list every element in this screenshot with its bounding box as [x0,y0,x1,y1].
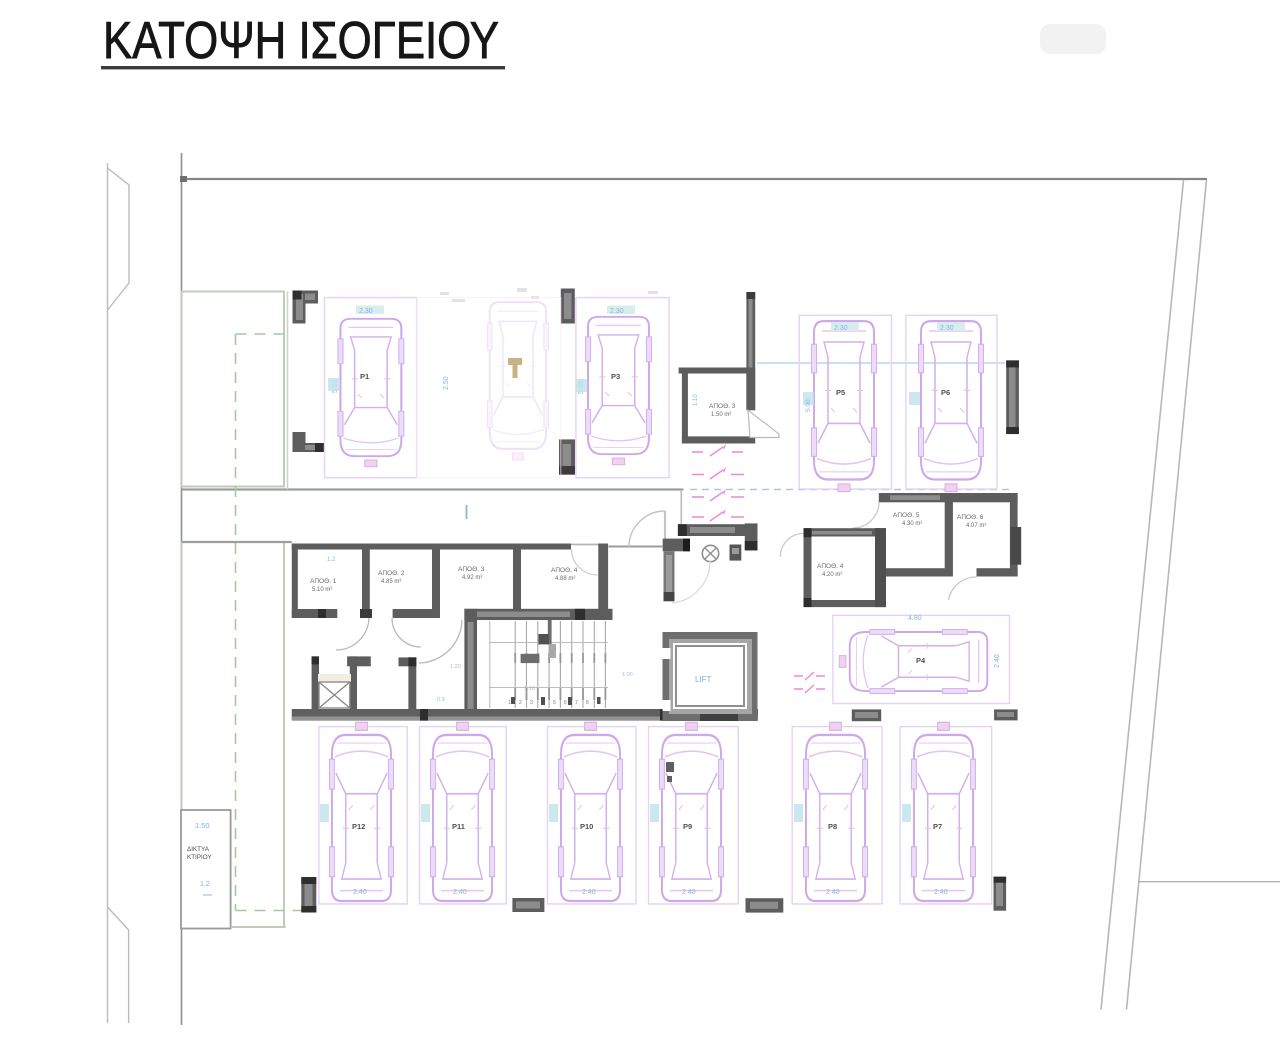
svg-text:2.40: 2.40 [682,889,696,896]
svg-text:4.07 m²: 4.07 m² [966,523,986,529]
svg-text:4.88 m²: 4.88 m² [555,576,575,582]
svg-text:2.30: 2.30 [940,325,954,332]
svg-text:4.92 m²: 4.92 m² [462,575,482,581]
svg-text:ΑΠΟΘ. 3: ΑΠΟΘ. 3 [709,403,736,410]
svg-text:5.10 m²: 5.10 m² [312,587,332,593]
svg-text:ΑΠΟΘ. 1: ΑΠΟΘ. 1 [310,578,337,585]
svg-text:ΑΠΟΘ. 3: ΑΠΟΘ. 3 [458,566,485,573]
svg-text:6: 6 [564,700,567,706]
svg-text:2.40: 2.40 [826,889,840,896]
svg-text:2.40: 2.40 [353,889,367,896]
svg-text:2.30: 2.30 [610,308,624,315]
svg-text:LIFT: LIFT [695,675,712,684]
svg-text:7: 7 [575,700,578,706]
svg-text:P6: P6 [941,388,950,397]
svg-text:2.30: 2.30 [834,325,848,332]
svg-text:1.10: 1.10 [524,686,535,692]
svg-text:1.50 m²: 1.50 m² [711,412,731,418]
svg-text:ΚΤΙΡΙΟΥ: ΚΤΙΡΙΟΥ [187,854,212,861]
svg-text:2.40: 2.40 [453,889,467,896]
svg-text:P7: P7 [933,822,942,831]
svg-text:5.00: 5.00 [805,399,812,412]
svg-text:ΚΑΤΟΨΗ ΙΣΟΓΕΙΟΥ: ΚΑΤΟΨΗ ΙΣΟΓΕΙΟΥ [103,12,499,70]
svg-text:P1: P1 [360,372,369,381]
svg-text:ΑΠΟΘ. 4: ΑΠΟΘ. 4 [551,567,578,574]
svg-text:P4: P4 [916,656,926,665]
svg-text:1.10: 1.10 [693,394,699,406]
svg-text:1.50: 1.50 [195,821,210,830]
svg-text:ΑΠΟΘ. 5: ΑΠΟΘ. 5 [893,512,920,519]
svg-text:ΑΠΟΘ. 6: ΑΠΟΘ. 6 [957,514,984,521]
svg-text:P11: P11 [452,822,465,831]
svg-text:P8: P8 [828,822,837,831]
svg-text:2.30: 2.30 [359,308,373,315]
svg-text:0.9: 0.9 [437,697,445,703]
svg-text:4.85 m²: 4.85 m² [381,579,401,585]
svg-text:4.80: 4.80 [908,615,922,622]
svg-text:5: 5 [553,700,556,706]
svg-text:1.00: 1.00 [622,672,633,678]
svg-text:ΑΠΟΘ. 2: ΑΠΟΘ. 2 [378,570,405,577]
svg-text:8: 8 [586,700,589,706]
svg-text:4.20 m²: 4.20 m² [822,572,842,578]
svg-text:2.40: 2.40 [934,889,948,896]
svg-text:1: 1 [508,700,511,706]
svg-text:2.40: 2.40 [994,654,1001,668]
svg-text:2.50: 2.50 [443,376,450,390]
svg-text:1.2: 1.2 [327,557,336,563]
svg-text:4.30 m²: 4.30 m² [902,521,922,527]
svg-text:P3: P3 [611,372,620,381]
svg-text:P12: P12 [352,822,365,831]
svg-text:ΔΙΚΤΥΑ: ΔΙΚΤΥΑ [187,846,210,853]
svg-text:P10: P10 [580,822,593,831]
svg-text:P5: P5 [836,388,845,397]
svg-text:2: 2 [519,700,522,706]
svg-text:1.2: 1.2 [200,881,210,888]
svg-text:3: 3 [530,700,533,706]
svg-text:P9: P9 [683,822,692,831]
svg-text:1.20: 1.20 [450,664,461,670]
svg-text:ΑΠΟΘ. 4: ΑΠΟΘ. 4 [817,563,844,570]
svg-text:2.40: 2.40 [582,889,596,896]
